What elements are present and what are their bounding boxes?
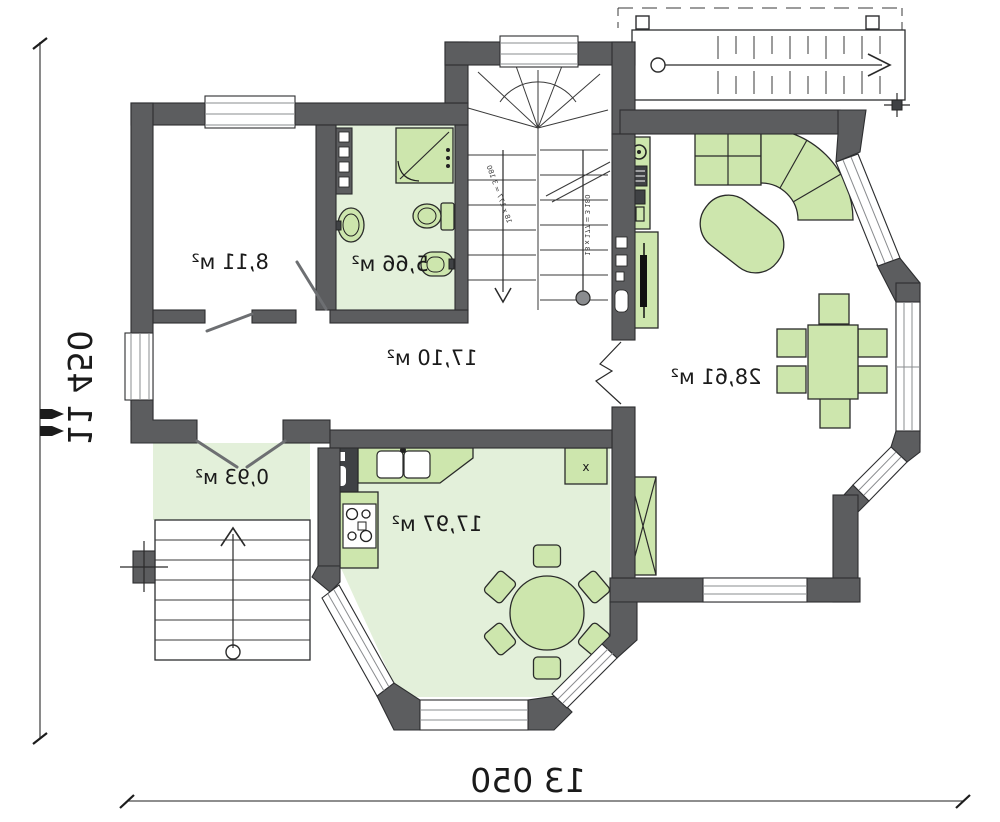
shower-cabin xyxy=(396,128,453,183)
dimension-height-label: 11 450 xyxy=(60,330,99,445)
room-label-bedroom: 8,11 м² xyxy=(191,250,269,274)
window xyxy=(205,96,295,128)
window xyxy=(853,447,907,501)
round-table xyxy=(510,576,584,650)
sink-bowl xyxy=(377,451,403,478)
sink-bowl xyxy=(404,451,430,478)
window xyxy=(703,578,807,602)
floor-plan-canvas: 18 x 177 = 3 180 18 x 177 = 3 180 xyxy=(0,0,1000,822)
room-label-living: 28,61 м² xyxy=(670,365,761,389)
kitchen-chair xyxy=(534,545,561,567)
dining-chair xyxy=(819,294,849,324)
coffee-table xyxy=(689,184,794,284)
dining-table-set xyxy=(777,294,887,428)
stair-note: 18 x 177 = 3 180 xyxy=(485,164,513,224)
room-label-bathroom: 5,66 м² xyxy=(351,252,429,276)
kitchen-counter-left xyxy=(340,492,378,568)
stair-note: 18 x 177 = 3 180 xyxy=(583,194,591,255)
entrance-stairs xyxy=(120,520,310,660)
stair-walk-line xyxy=(495,150,590,305)
dimension-line-vertical xyxy=(33,38,47,744)
room-label-porch: 0,93 м² xyxy=(195,465,269,489)
dining-chair xyxy=(820,398,850,428)
dimension-width-label: 13 050 xyxy=(470,761,585,800)
room-label-kitchen: 17,97 м² xyxy=(391,512,482,536)
tv-stand xyxy=(634,232,658,328)
toilet xyxy=(413,203,454,230)
window xyxy=(500,36,578,67)
staircase-main: 18 x 177 = 3 180 18 x 177 = 3 180 xyxy=(468,66,610,310)
window xyxy=(125,333,153,400)
dining-chair xyxy=(858,329,887,357)
terrace-stairs xyxy=(618,8,910,117)
bedroom-door-leaf xyxy=(207,314,252,331)
wall-opening-break xyxy=(596,342,621,404)
kitchen-chair xyxy=(534,657,561,679)
window xyxy=(420,700,528,730)
dining-table xyxy=(808,325,858,399)
fridge-mark: x xyxy=(582,460,589,474)
dining-chair xyxy=(858,366,887,393)
room-label-hallway: 17,10 м² xyxy=(386,346,477,370)
dining-chair xyxy=(777,329,806,357)
fridge: x xyxy=(565,448,607,484)
window xyxy=(896,302,920,431)
dining-chair xyxy=(777,366,806,393)
floor-plan-drawing: 18 x 177 = 3 180 18 x 177 = 3 180 xyxy=(0,0,1000,822)
